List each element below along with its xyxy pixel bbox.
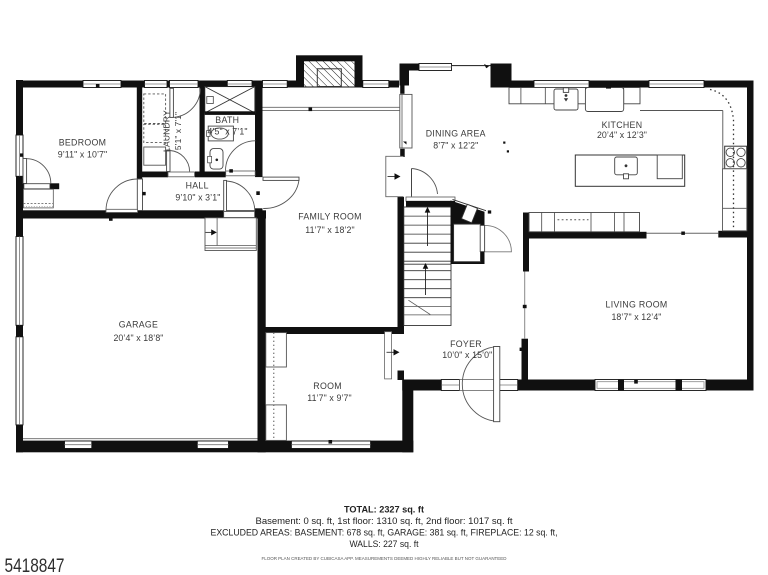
svg-text:WALLS: 227 sq. ft: WALLS: 227 sq. ft — [350, 539, 419, 549]
svg-text:BEDROOM: BEDROOM — [59, 138, 107, 148]
svg-text:20’4" x 18’8": 20’4" x 18’8" — [113, 333, 163, 343]
svg-text:KITCHEN: KITCHEN — [602, 120, 643, 130]
svg-text:11’7" x 18’2": 11’7" x 18’2" — [305, 225, 354, 235]
svg-text:DINING AREA: DINING AREA — [426, 128, 486, 138]
svg-text:Basement: 0 sq. ft, 1st floor:: Basement: 0 sq. ft, 1st floor: 1310 sq. … — [256, 516, 514, 526]
svg-text:5’1" x 7’1": 5’1" x 7’1" — [173, 112, 183, 150]
svg-text:8’7" x 12’2": 8’7" x 12’2" — [433, 141, 478, 151]
svg-text:BATH: BATH — [215, 115, 239, 125]
svg-text:TOTAL: 2327 sq. ft: TOTAL: 2327 sq. ft — [344, 504, 424, 514]
svg-text:FAMILY ROOM: FAMILY ROOM — [298, 212, 362, 222]
svg-text:11’7" x 9’7": 11’7" x 9’7" — [307, 393, 351, 403]
svg-text:ROOM: ROOM — [313, 381, 342, 391]
svg-text:9’10" x 3’1": 9’10" x 3’1" — [175, 193, 220, 203]
svg-text:9’11" x 10’7": 9’11" x 10’7" — [58, 150, 107, 160]
svg-text:LAUNDRY: LAUNDRY — [162, 110, 172, 152]
svg-text:5418847: 5418847 — [5, 555, 65, 575]
svg-text:HALL: HALL — [186, 181, 209, 191]
svg-text:4’5" x 7’1": 4’5" x 7’1" — [207, 126, 247, 136]
svg-text:LIVING ROOM: LIVING ROOM — [606, 300, 668, 310]
svg-text:FLOOR PLAN CREATED BY CUBICASA: FLOOR PLAN CREATED BY CUBICASA APP. MEAS… — [262, 556, 507, 561]
svg-text:10’0" x 15’0": 10’0" x 15’0" — [442, 350, 492, 360]
svg-text:GARAGE: GARAGE — [119, 319, 158, 329]
svg-text:20’4" x 12’3": 20’4" x 12’3" — [597, 130, 647, 140]
svg-text:18’7" x 12’4": 18’7" x 12’4" — [611, 312, 661, 322]
svg-text:EXCLUDED AREAS: BASEMENT: 678: EXCLUDED AREAS: BASEMENT: 678 sq. ft, GA… — [211, 527, 558, 537]
svg-text:FOYER: FOYER — [450, 339, 482, 349]
